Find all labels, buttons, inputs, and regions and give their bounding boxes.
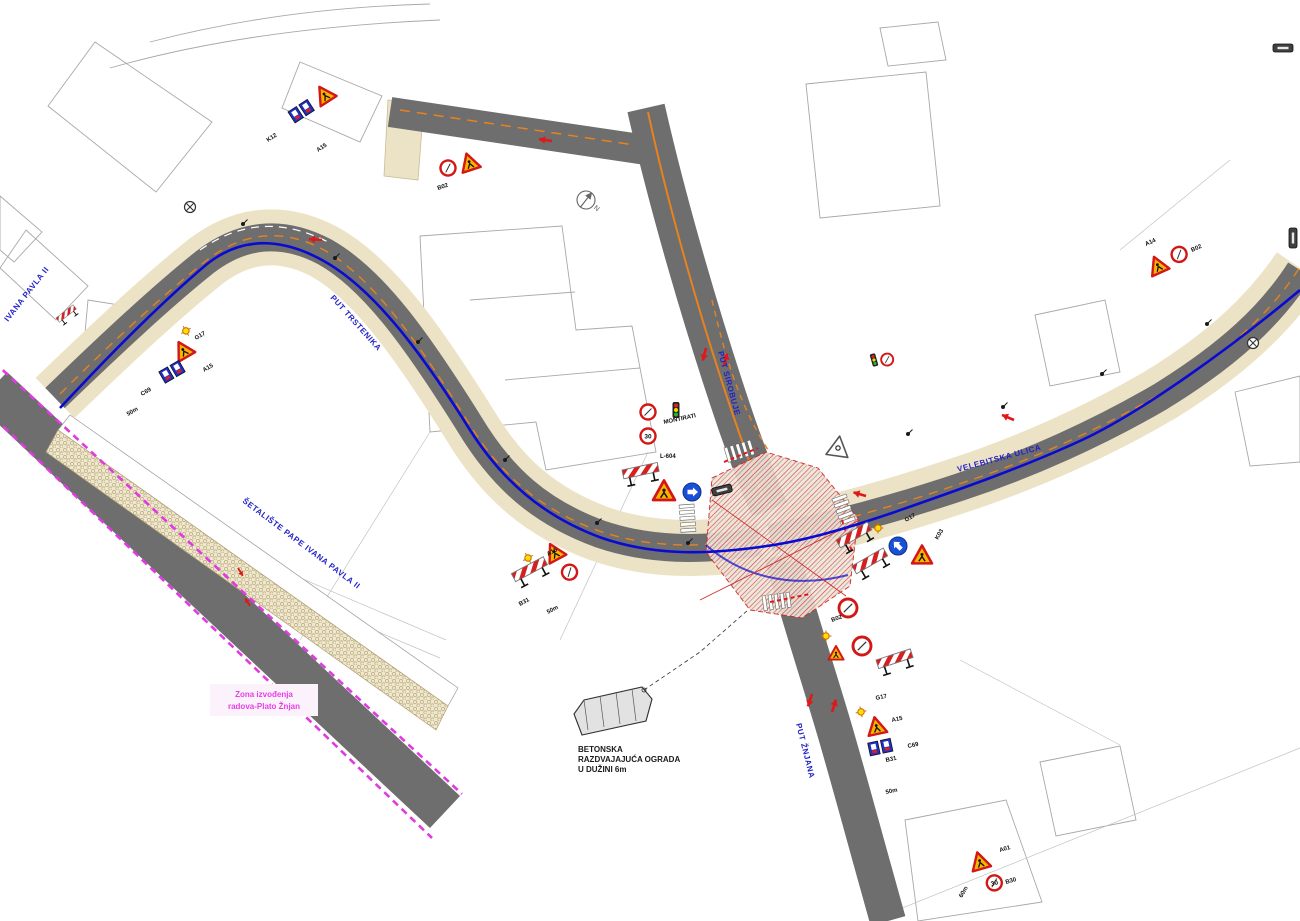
crossed-circle-icon — [1248, 338, 1259, 349]
sign-cluster-southeast — [821, 599, 916, 676]
work-zone-annotation: Zona izvođenja radova-Plato Žnjan — [210, 684, 318, 716]
sign-cluster-topright — [1145, 244, 1189, 276]
code-label: G17 — [875, 694, 888, 702]
code-label: 50m — [126, 407, 139, 418]
code-label: A15 — [891, 716, 904, 724]
code-label: B31 — [885, 756, 898, 764]
sign-plate-topright — [1273, 44, 1293, 52]
sign-cluster-south — [855, 702, 893, 757]
warning-triangle-outline — [826, 435, 851, 458]
street-label-left-edge: IVANA PAVLA II — [2, 265, 50, 323]
code-label: A01 — [999, 845, 1012, 854]
code-label: A15 — [202, 363, 215, 374]
sign-cluster-bottomright: 30 — [968, 848, 1003, 895]
note-line2: RAZDVAJAJUĆA OGRADA — [578, 755, 680, 764]
barrier-note: BETONSKA RAZDVAJAJUĆA OGRADA U DUŽINI 6m — [578, 745, 680, 774]
code-label: C69 — [140, 387, 153, 398]
crossed-circle-icon — [185, 202, 196, 213]
code-label: L-604 — [660, 454, 676, 460]
street-label-south: PUT ŽNJANA — [794, 722, 816, 779]
code-label: B30 — [1005, 877, 1018, 886]
code-label: 60m — [959, 886, 970, 899]
note-line1: BETONSKA — [578, 745, 623, 754]
work-zone-road — [0, 362, 462, 838]
sign-cluster-topmid — [438, 151, 480, 179]
code-label: B02 — [437, 183, 450, 192]
sign-plate-rightedge — [1289, 228, 1297, 248]
sign-cluster-topleft — [286, 82, 337, 123]
speed-limit-value: 30 — [644, 433, 652, 440]
north-arrow: N — [573, 187, 604, 217]
code-label: A15 — [316, 142, 329, 153]
code-label: 50m — [546, 605, 559, 616]
zone-text-line1: Zona izvođenja — [235, 690, 293, 699]
plan-drawing: N — [0, 0, 1300, 921]
code-label: 50m — [885, 788, 898, 796]
zone-text-line2: radova-Plato Žnjan — [228, 702, 300, 711]
sign-cluster-east-small — [870, 349, 895, 370]
code-label: K12 — [266, 132, 279, 143]
code-label: MONTIRATI — [663, 413, 697, 426]
code-label: K03 — [935, 528, 946, 541]
code-label: G17 — [194, 331, 207, 342]
code-label: A14 — [1144, 238, 1157, 248]
code-label: B02 — [1190, 244, 1203, 254]
road-top — [384, 100, 660, 180]
traffic-plan-canvas: N — [0, 0, 1300, 921]
note-line3: U DUŽINI 6m — [578, 765, 626, 774]
code-label: B31 — [518, 597, 531, 608]
concrete-barrier-sketch — [574, 610, 748, 735]
code-label: C69 — [907, 742, 920, 750]
